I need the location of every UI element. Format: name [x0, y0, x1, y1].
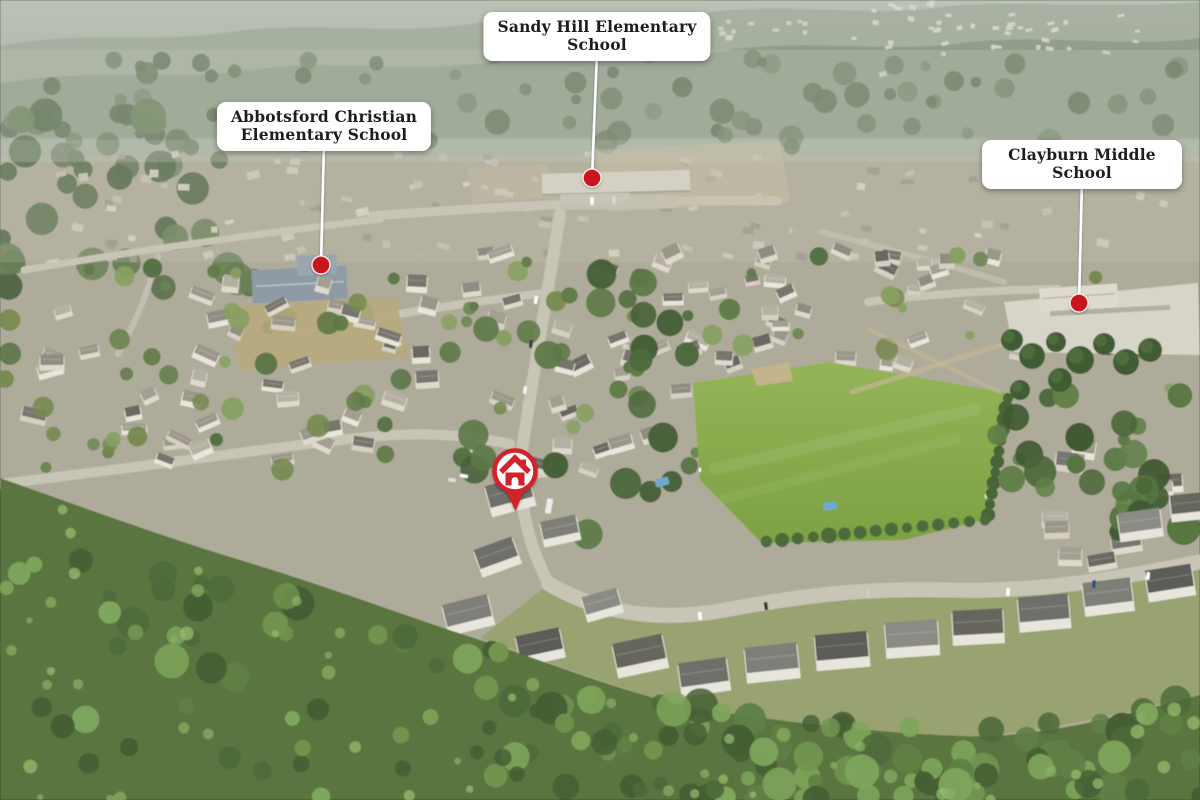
callout-text-line2: Elementary School — [231, 126, 417, 144]
callout-text-line2: School — [497, 36, 696, 54]
aerial-photo-background — [0, 0, 1200, 800]
callout-text-line1: Clayburn Middle — [996, 146, 1168, 164]
listing-photo: Sandy Hill Elementary School Abbotsford … — [0, 0, 1200, 800]
callout-text-line1: Abbotsford Christian — [231, 108, 417, 126]
callout-abbotsford-christian-elementary-school: Abbotsford Christian Elementary School — [217, 102, 431, 151]
callout-sandy-hill-elementary-school: Sandy Hill Elementary School — [483, 12, 710, 61]
callout-text-line2: School — [996, 164, 1168, 182]
callout-clayburn-middle-school: Clayburn Middle School — [982, 140, 1182, 189]
callout-text-line1: Sandy Hill Elementary — [497, 18, 696, 36]
